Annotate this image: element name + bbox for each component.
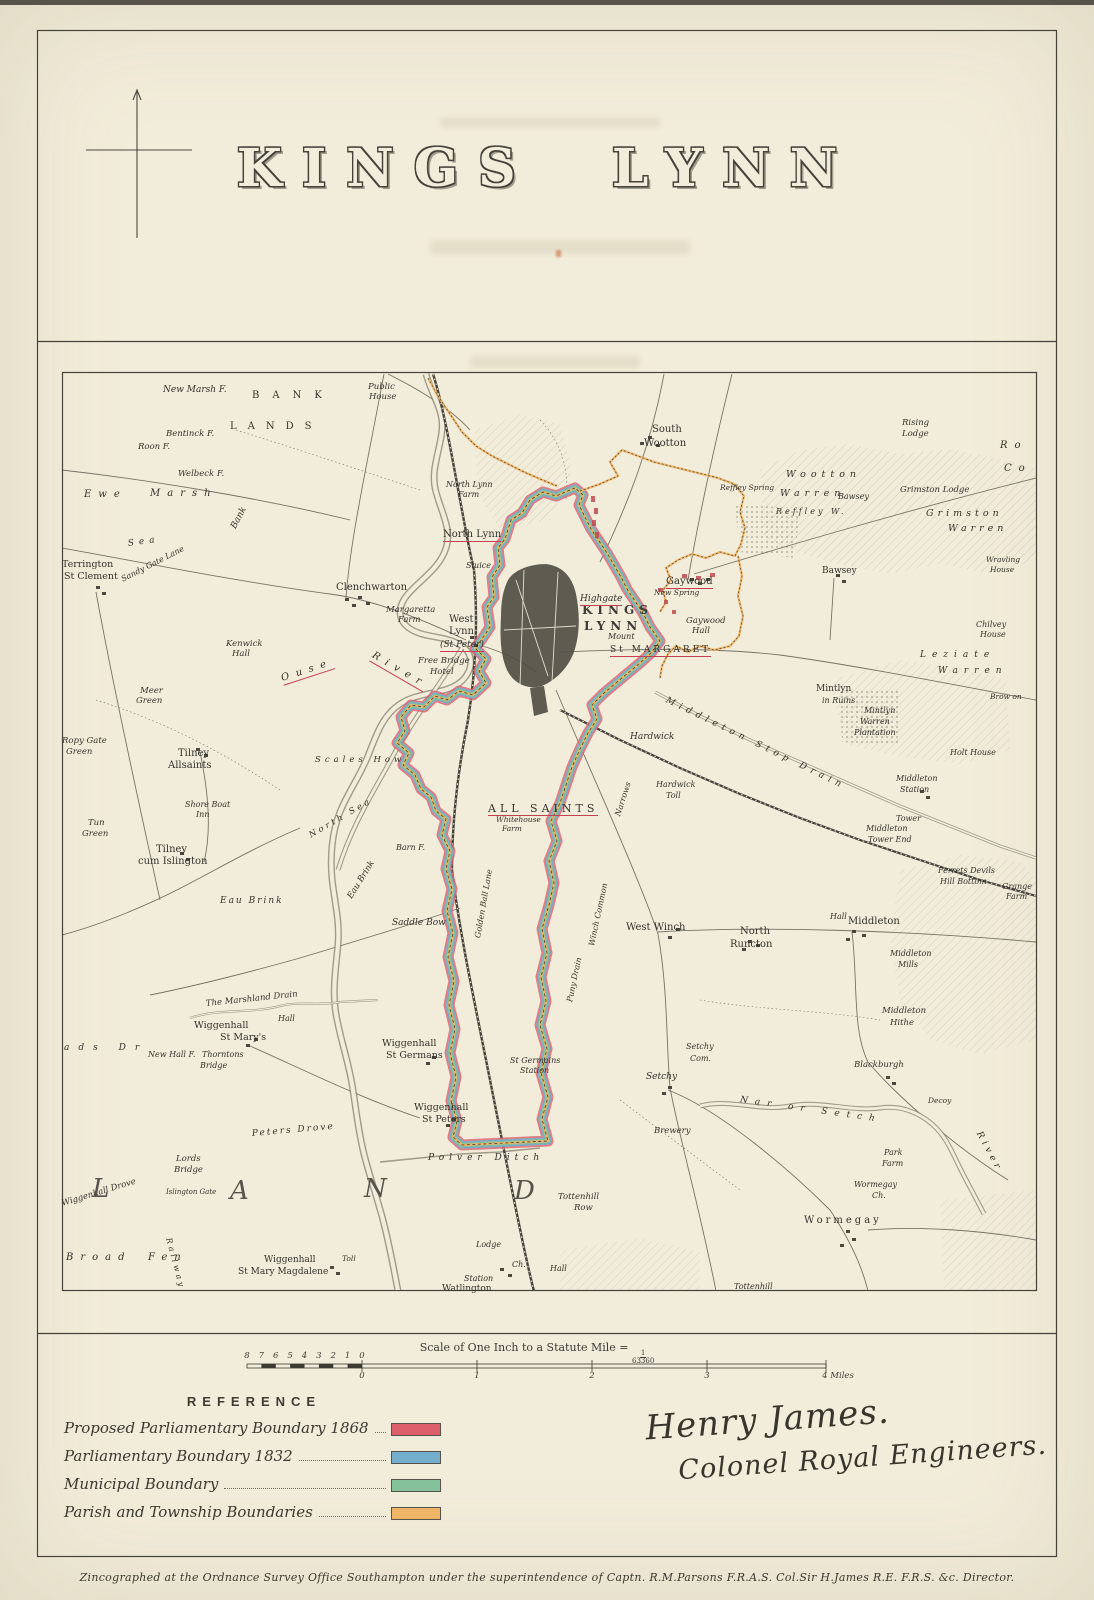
color-swatch xyxy=(391,1423,441,1436)
reference-item: Parliamentary Boundary 1832 xyxy=(64,1437,441,1465)
reference-item-label: Parliamentary Boundary 1832 xyxy=(64,1447,293,1465)
reference-leader xyxy=(299,1459,386,1461)
reference-legend: REFERENCE Proposed Parliamentary Boundar… xyxy=(64,1394,441,1521)
map-content xyxy=(62,374,1036,1291)
reference-rows: Proposed Parliamentary Boundary 1868Parl… xyxy=(64,1409,441,1521)
reference-item-label: Parish and Township Boundaries xyxy=(64,1503,313,1521)
reference-item-label: Proposed Parliamentary Boundary 1868 xyxy=(64,1419,369,1437)
scale-caption-text: Scale of One Inch to a Statute Mile = xyxy=(420,1341,629,1354)
sheet-title: KINGS LYNN xyxy=(0,138,1094,199)
reference-leader xyxy=(224,1487,386,1489)
scale-fraction: 163360 xyxy=(632,1350,654,1365)
imprint: Zincographed at the Ordnance Survey Offi… xyxy=(0,1571,1094,1584)
scan-edge xyxy=(0,0,1094,5)
showthrough-smudge xyxy=(470,356,640,368)
sheet-border xyxy=(38,31,1057,1557)
reference-item: Municipal Boundary xyxy=(64,1465,441,1493)
map-sheet: KINGS LYNN New Marsh F.BANKLANDSPublicHo… xyxy=(0,0,1094,1600)
town-area xyxy=(501,564,579,716)
reference-item: Parish and Township Boundaries xyxy=(64,1493,441,1521)
scale-caption: Scale of One Inch to a Statute Mile = 16… xyxy=(287,1341,787,1365)
reference-heading: REFERENCE xyxy=(124,1394,384,1409)
reference-leader xyxy=(375,1431,386,1433)
reference-item: Proposed Parliamentary Boundary 1868 xyxy=(64,1409,441,1437)
ink-fleck xyxy=(556,250,561,257)
reference-leader xyxy=(319,1515,386,1517)
color-swatch xyxy=(391,1451,441,1464)
showthrough-smudge xyxy=(440,118,660,128)
color-swatch xyxy=(391,1507,441,1520)
reference-item-label: Municipal Boundary xyxy=(64,1475,218,1493)
signature: Henry James. Colonel Royal Engineers. xyxy=(600,1394,1060,1473)
color-swatch xyxy=(391,1479,441,1492)
